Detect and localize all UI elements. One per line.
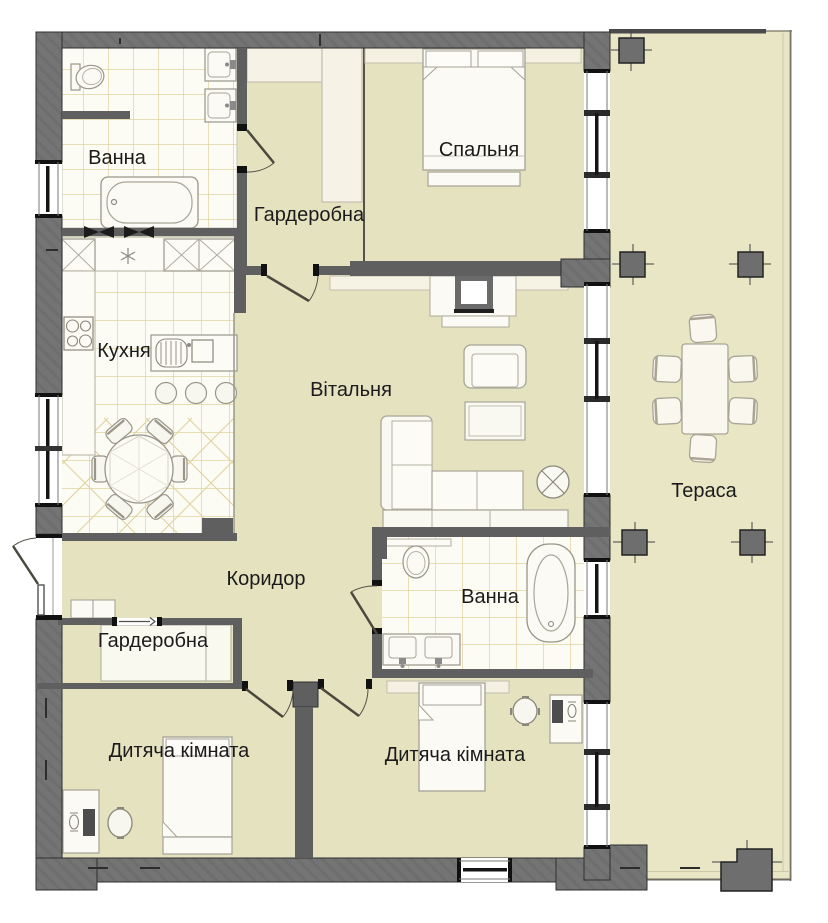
svg-text:Кухня: Кухня [97,340,151,362]
svg-text:Дитяча кімната: Дитяча кімната [109,740,250,762]
svg-text:Спальня: Спальня [439,139,519,161]
svg-text:Ванна: Ванна [461,586,520,608]
svg-text:Коридор: Коридор [227,568,306,590]
svg-text:Ванна: Ванна [88,147,147,169]
svg-text:Гардеробна: Гардеробна [98,630,209,652]
svg-text:Вітальня: Вітальня [310,379,392,401]
svg-text:Дитяча кімната: Дитяча кімната [385,744,526,766]
svg-text:Гардеробна: Гардеробна [254,204,365,226]
svg-text:Тераса: Тераса [671,480,737,502]
